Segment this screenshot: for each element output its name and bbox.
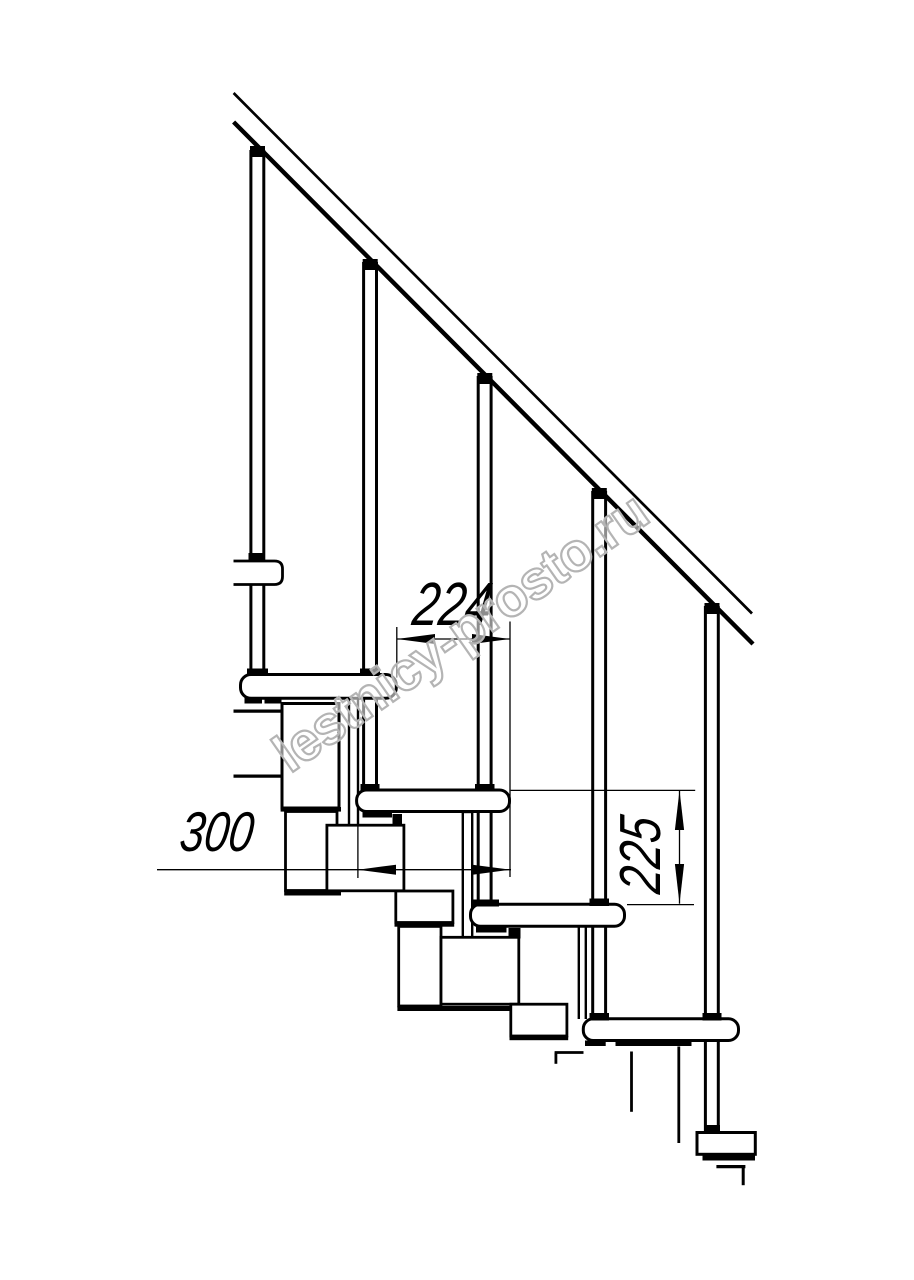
svg-text:225: 225	[609, 811, 673, 897]
svg-text:300: 300	[176, 800, 258, 863]
